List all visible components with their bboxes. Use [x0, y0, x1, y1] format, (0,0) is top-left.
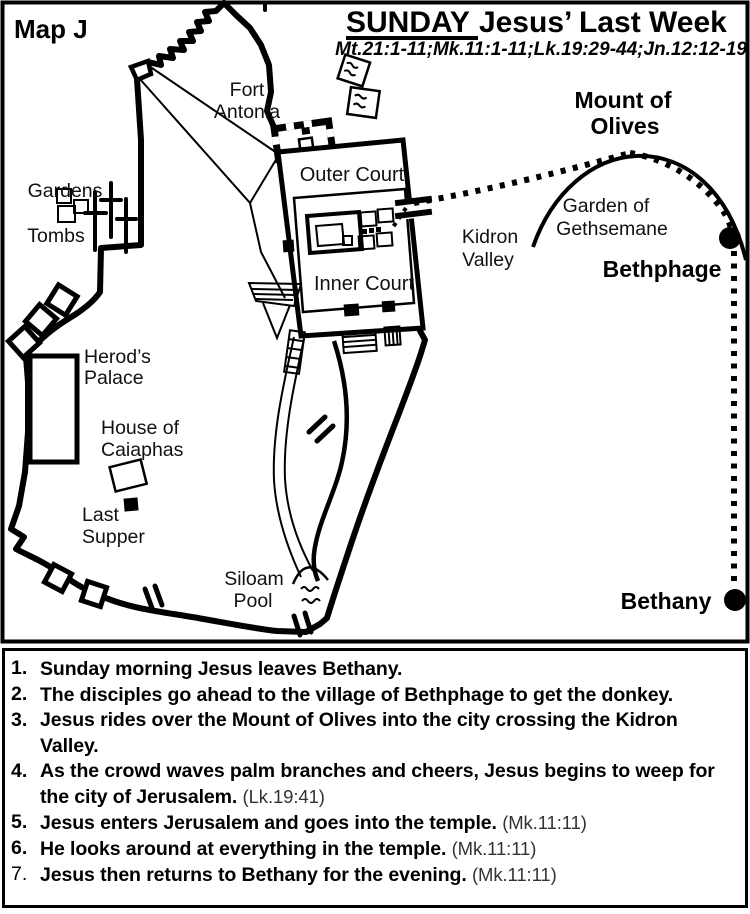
event-item: 5. Jesus enters Jerusalem and goes into …	[11, 810, 741, 836]
event-text: Jesus enters Jerusalem and goes into the…	[40, 812, 497, 834]
scripture-references: Mt.21:1-11;Mk.11:1-11;Lk.19:29-44;Jn.12:…	[335, 39, 747, 60]
event-item: 3. Jesus rides over the Mount of Olives …	[11, 708, 741, 759]
label-siloam-pool: Siloam	[224, 568, 284, 590]
label-mount-of-olives: Mount of	[574, 87, 671, 113]
label-kidron-valley: Kidron	[462, 226, 518, 248]
event-text: As the crowd waves palm branches and che…	[40, 760, 715, 808]
event-text: Jesus rides over the Mount of Olives int…	[40, 709, 678, 757]
page-title: SUNDAYJesus’ Last Week	[346, 6, 727, 39]
label-house-of-caiaphas: House of	[101, 417, 180, 439]
svg-text:Valley: Valley	[462, 249, 514, 271]
event-item: 1. Sunday morning Jesus leaves Bethany.	[11, 656, 741, 682]
event-reference: (Lk.19:41)	[243, 786, 325, 807]
event-number: 3.	[11, 708, 40, 733]
map-letter-label: Map J	[14, 14, 88, 44]
svg-text:Palace: Palace	[84, 367, 144, 389]
label-garden-of-gethsemane: Garden of	[563, 195, 650, 217]
event-item: 2. The disciples go ahead to the village…	[11, 682, 741, 708]
bethany-dot	[724, 589, 746, 611]
event-number: 5.	[11, 810, 40, 835]
map-handout-page: Map J SUNDAYJesus’ Last Week Mt.21:1-11;…	[0, 0, 750, 914]
event-text: Jesus then returns to Bethany for the ev…	[40, 864, 467, 886]
label-herods-palace: Herod’s	[84, 346, 151, 368]
svg-text:Gethsemane: Gethsemane	[556, 218, 668, 240]
label-gardens: Gardens	[28, 180, 103, 202]
event-number: 6.	[11, 836, 40, 861]
svg-text:Caiaphas: Caiaphas	[101, 439, 184, 461]
svg-text:Olives: Olives	[590, 113, 659, 139]
event-reference: (Mk.11:11)	[472, 864, 557, 885]
event-text: The disciples go ahead to the village of…	[40, 684, 673, 706]
svg-text:Antonia: Antonia	[214, 101, 280, 123]
northwest-gate-icon	[131, 61, 151, 80]
event-number: 4.	[11, 759, 40, 784]
event-text: Sunday morning Jesus leaves Bethany.	[40, 658, 402, 680]
svg-text:Supper: Supper	[82, 526, 145, 548]
label-outer-court: Outer Court	[300, 164, 405, 186]
event-item: 6. He looks around at everything in the …	[11, 836, 741, 862]
label-last-supper: Last	[82, 504, 119, 526]
event-text: He looks around at everything in the tem…	[40, 838, 446, 860]
event-number: 7.	[11, 862, 40, 887]
svg-text:Pool: Pool	[233, 590, 272, 612]
event-item: 4. As the crowd waves palm branches and …	[11, 759, 741, 810]
bethphage-dot	[719, 227, 741, 249]
event-item: 7. Jesus then returns to Bethany for the…	[11, 862, 741, 888]
label-fort-antonia: Fort	[230, 79, 265, 101]
label-bethphage: Bethphage	[603, 256, 722, 282]
label-tombs: Tombs	[27, 225, 85, 247]
label-inner-court: Inner Court	[314, 273, 414, 295]
label-bethany: Bethany	[621, 588, 712, 614]
jerusalem-map: Map J SUNDAYJesus’ Last Week Mt.21:1-11;…	[0, 0, 750, 645]
last-supper-icon	[124, 497, 139, 511]
events-list: 1. Sunday morning Jesus leaves Bethany. …	[2, 648, 748, 908]
event-reference: (Mk.11:11)	[502, 812, 587, 833]
event-number: 1.	[11, 656, 40, 681]
event-number: 2.	[11, 682, 40, 707]
event-reference: (Mk.11:11)	[452, 838, 537, 859]
